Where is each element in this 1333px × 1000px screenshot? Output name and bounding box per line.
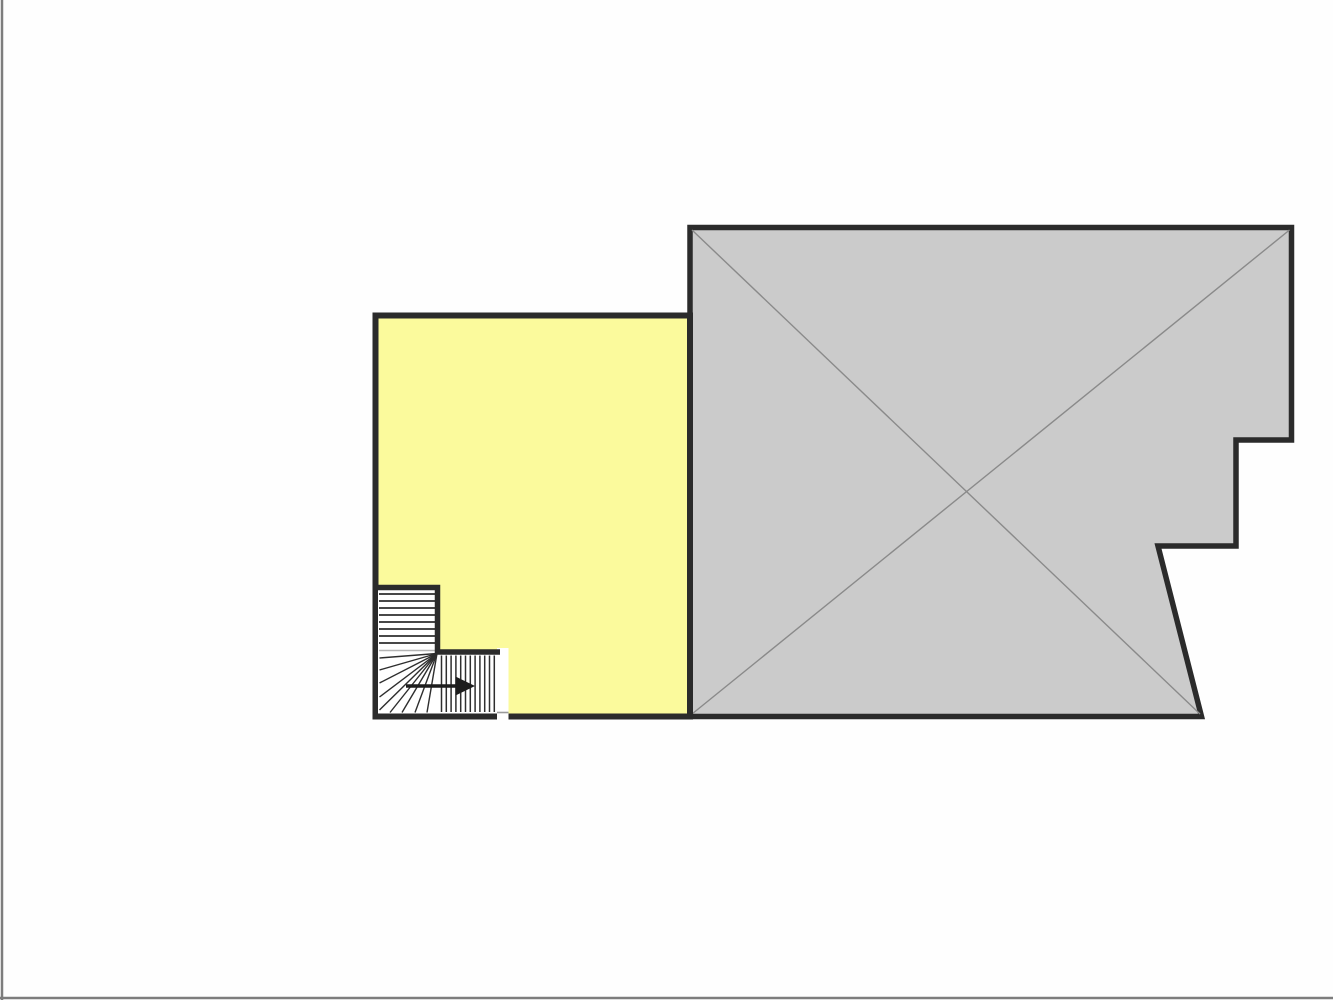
floor-plan-page (0, 0, 1333, 1000)
stair-opening (497, 648, 509, 720)
floor-plan-canvas (0, 0, 1333, 1000)
